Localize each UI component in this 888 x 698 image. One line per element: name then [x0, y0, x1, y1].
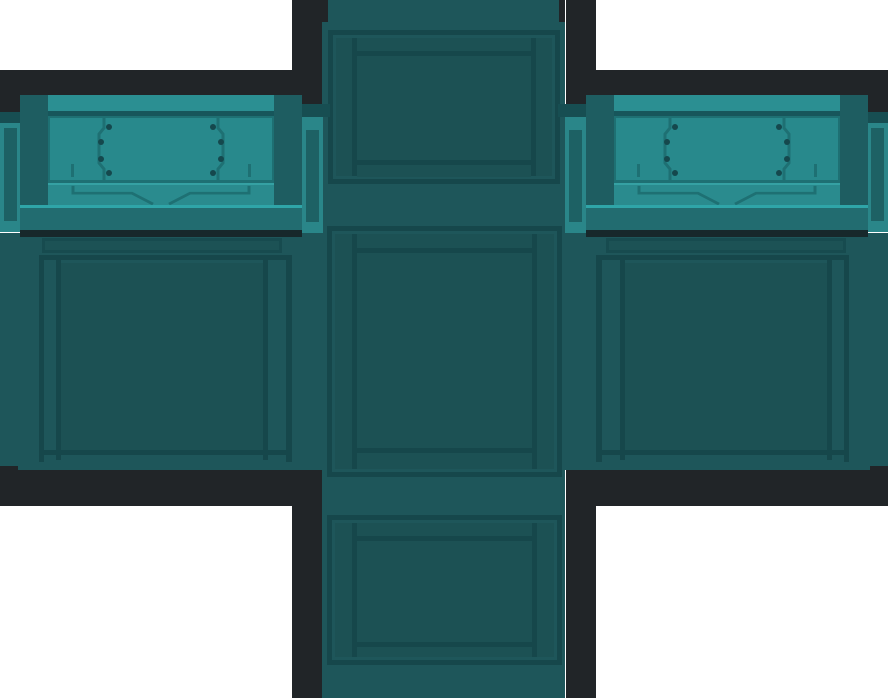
screw	[784, 156, 790, 162]
plate-seam	[218, 118, 223, 180]
outline-strip-lower-right	[566, 470, 596, 698]
plate-tick	[637, 164, 640, 177]
right-inner-hinge-band	[558, 104, 586, 117]
right-face-frame-top	[596, 255, 849, 260]
top-face-inner-panel	[357, 56, 531, 160]
top-face-post-right	[536, 38, 552, 176]
right-inner-tab	[565, 117, 586, 233]
plate-seam	[784, 118, 789, 180]
screw	[218, 139, 224, 145]
outline-step-top-left	[0, 95, 20, 112]
back-face-post-left	[335, 234, 352, 469]
right-face-frame-bottom	[602, 450, 844, 455]
screw	[664, 139, 670, 145]
screw	[672, 170, 678, 176]
texture-atlas-canvas	[0, 0, 888, 698]
outline-notch-left	[322, 0, 328, 22]
plate-seam	[99, 118, 104, 180]
screw	[106, 170, 112, 176]
outline-step-bottom-right	[870, 466, 888, 471]
right-lid-top-bar	[614, 95, 840, 116]
right-lid-plate	[614, 116, 840, 183]
right-outer-tab	[868, 123, 888, 232]
back-face-post-right	[537, 234, 554, 469]
bottom-face-top-bar	[357, 523, 532, 536]
outline-step-bottom-left	[0, 466, 18, 471]
bottom-face-divider	[532, 523, 537, 657]
right-outer-tab-slot	[871, 128, 884, 221]
screw	[776, 170, 782, 176]
screw	[776, 124, 782, 130]
screw	[98, 156, 104, 162]
left-face-frame-side	[39, 255, 44, 462]
plate-tick	[814, 164, 817, 177]
left-face-inner-panel	[61, 263, 263, 450]
left-lid-top-bar	[48, 95, 274, 116]
left-lid-lower-strip	[48, 183, 274, 205]
left-face-groove-strip	[42, 238, 282, 253]
top-face-post-left	[336, 38, 352, 176]
top-face-bottom-bar	[357, 165, 531, 177]
outline-strip-lower-left	[292, 470, 322, 698]
top-face-divider	[531, 38, 536, 176]
right-inner-tab-slot	[569, 130, 582, 222]
left-inner-hinge-band	[302, 104, 330, 117]
outline-band-bottom-left	[0, 470, 292, 506]
right-face-groove-strip	[606, 238, 846, 253]
left-face-frame-bottom	[44, 450, 286, 455]
back-face-divider	[532, 234, 537, 469]
right-face-divider	[827, 260, 832, 460]
screw	[106, 124, 112, 130]
left-face-divider	[263, 260, 268, 460]
screw	[210, 124, 216, 130]
screw	[672, 124, 678, 130]
right-face-frame-side	[844, 255, 849, 462]
screw	[664, 156, 670, 162]
right-lid-strip-detail	[614, 185, 840, 205]
left-inner-tab	[302, 117, 323, 233]
screw	[210, 170, 216, 176]
left-outer-tab	[0, 123, 20, 232]
left-lid-rail	[20, 205, 302, 230]
right-outer-hinge-band	[868, 112, 888, 123]
right-lid-end-post-inner	[586, 95, 614, 205]
screw	[98, 139, 104, 145]
left-lid-plate	[48, 116, 274, 183]
left-inner-tab-slot	[306, 130, 319, 222]
right-lid-rail-shadow	[586, 230, 868, 237]
back-face-bottom-bar	[357, 453, 532, 469]
screw	[784, 139, 790, 145]
right-face-frame-side	[596, 255, 602, 462]
plate-tick	[248, 164, 251, 177]
right-face-inner-panel	[625, 263, 827, 450]
left-outer-tab-slot	[4, 128, 17, 221]
left-face-frame-top	[39, 255, 292, 260]
left-lid-end-post-inner	[274, 95, 302, 205]
outline-band-top-left	[0, 70, 292, 95]
left-lid-end-post-outer	[20, 95, 48, 205]
bottom-face-post-right	[537, 523, 554, 657]
outline-band-bottom-right	[596, 470, 888, 506]
left-outer-hinge-band	[0, 112, 20, 123]
top-face-top-bar	[357, 38, 531, 51]
left-lid-plate-detail	[50, 118, 272, 180]
plate-tick	[71, 164, 74, 177]
bottom-face-post-left	[335, 523, 352, 657]
outline-notch-right	[559, 0, 565, 22]
back-face-top-bar	[357, 234, 532, 248]
left-lid-rail-shadow	[20, 230, 302, 237]
right-lid-plate-detail	[616, 118, 838, 180]
left-lid-strip-detail	[48, 185, 274, 205]
right-lid-lower-strip	[614, 183, 840, 205]
right-lid-rail	[586, 205, 868, 230]
outline-band-top-right	[596, 70, 888, 95]
left-face-frame-side	[286, 255, 292, 462]
plate-seam	[665, 118, 670, 180]
screw	[218, 156, 224, 162]
bottom-face-bottom-bar	[357, 647, 532, 657]
right-lid-end-post-outer	[840, 95, 868, 205]
bottom-face-inner-panel	[357, 541, 532, 642]
outline-step-top-right	[868, 95, 888, 112]
back-face-inner-panel	[357, 253, 532, 448]
